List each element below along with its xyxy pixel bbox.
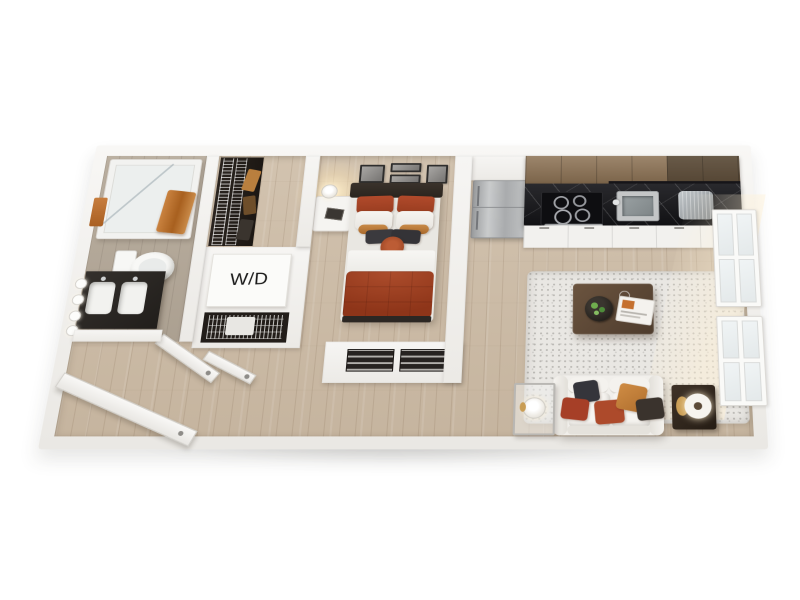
storage-box — [225, 317, 256, 335]
throw-pillow-rust — [560, 397, 590, 421]
window-pane — [723, 362, 741, 401]
fridge-door-seam — [473, 207, 525, 208]
refrigerator — [470, 180, 527, 238]
bed-foot-rail — [342, 316, 431, 322]
nightstand — [312, 196, 353, 231]
burner — [553, 196, 569, 209]
wall-art — [390, 163, 421, 172]
sofa-front-edge — [567, 426, 650, 435]
succulent-bowl — [585, 296, 613, 321]
window-pane — [736, 214, 754, 256]
succulent — [594, 311, 599, 316]
kitchen-sink — [616, 191, 659, 221]
dresser-drawer — [399, 349, 448, 372]
side-lamp-left — [522, 397, 545, 418]
burner — [573, 195, 587, 207]
window-pane — [719, 259, 737, 302]
window-pane — [738, 259, 756, 302]
sink-faucet — [100, 277, 106, 281]
nightstand-tray — [324, 208, 344, 221]
side-table-left — [513, 383, 556, 435]
side-lamp-right-finial — [694, 402, 703, 410]
cabinet-handle — [539, 227, 549, 229]
window-pane — [721, 321, 739, 359]
wall-art — [359, 165, 385, 183]
washer-dryer-unit: W/D — [205, 254, 292, 307]
succulent — [599, 307, 605, 312]
dresser-drawer — [346, 349, 395, 372]
coffee-table — [573, 284, 654, 335]
vanity-sink — [117, 282, 149, 314]
bed-duvet — [342, 271, 434, 318]
upper-cabinet-dark-panel — [667, 156, 741, 184]
fridge-handle — [476, 211, 479, 230]
magazine-cover-art — [621, 300, 634, 310]
throw-pillow-dark — [635, 397, 665, 421]
burner — [575, 209, 591, 223]
kitchen-faucet — [613, 199, 620, 205]
hanging-clothes — [243, 195, 257, 215]
cooktop — [540, 192, 603, 226]
side-table-right — [671, 385, 716, 430]
sink-faucet — [132, 277, 138, 281]
window — [716, 316, 768, 406]
wall-art — [426, 165, 448, 184]
fridge-cabinet — [471, 156, 527, 180]
floor-plan: W/D — [38, 145, 768, 449]
cabinet-handle — [629, 227, 639, 229]
succulent — [591, 302, 598, 308]
window — [712, 209, 762, 307]
magazine — [615, 296, 655, 326]
floor-plan-scene: W/D — [69, 119, 759, 459]
fridge-handle — [477, 186, 480, 206]
side-lamp-right — [684, 394, 712, 419]
upper-cabinets — [525, 156, 740, 184]
vanity — [76, 271, 166, 328]
storage-niche — [200, 312, 289, 342]
window-pane — [742, 321, 760, 359]
washer-dryer-label: W/D — [206, 253, 291, 309]
bathroom-bottom-wall — [72, 330, 163, 342]
burner — [554, 209, 572, 224]
window-pane — [744, 362, 763, 401]
cabinet-handle — [584, 227, 594, 229]
window-pane — [717, 214, 735, 256]
sink-basin — [622, 196, 653, 216]
vanity-sink — [84, 282, 116, 314]
